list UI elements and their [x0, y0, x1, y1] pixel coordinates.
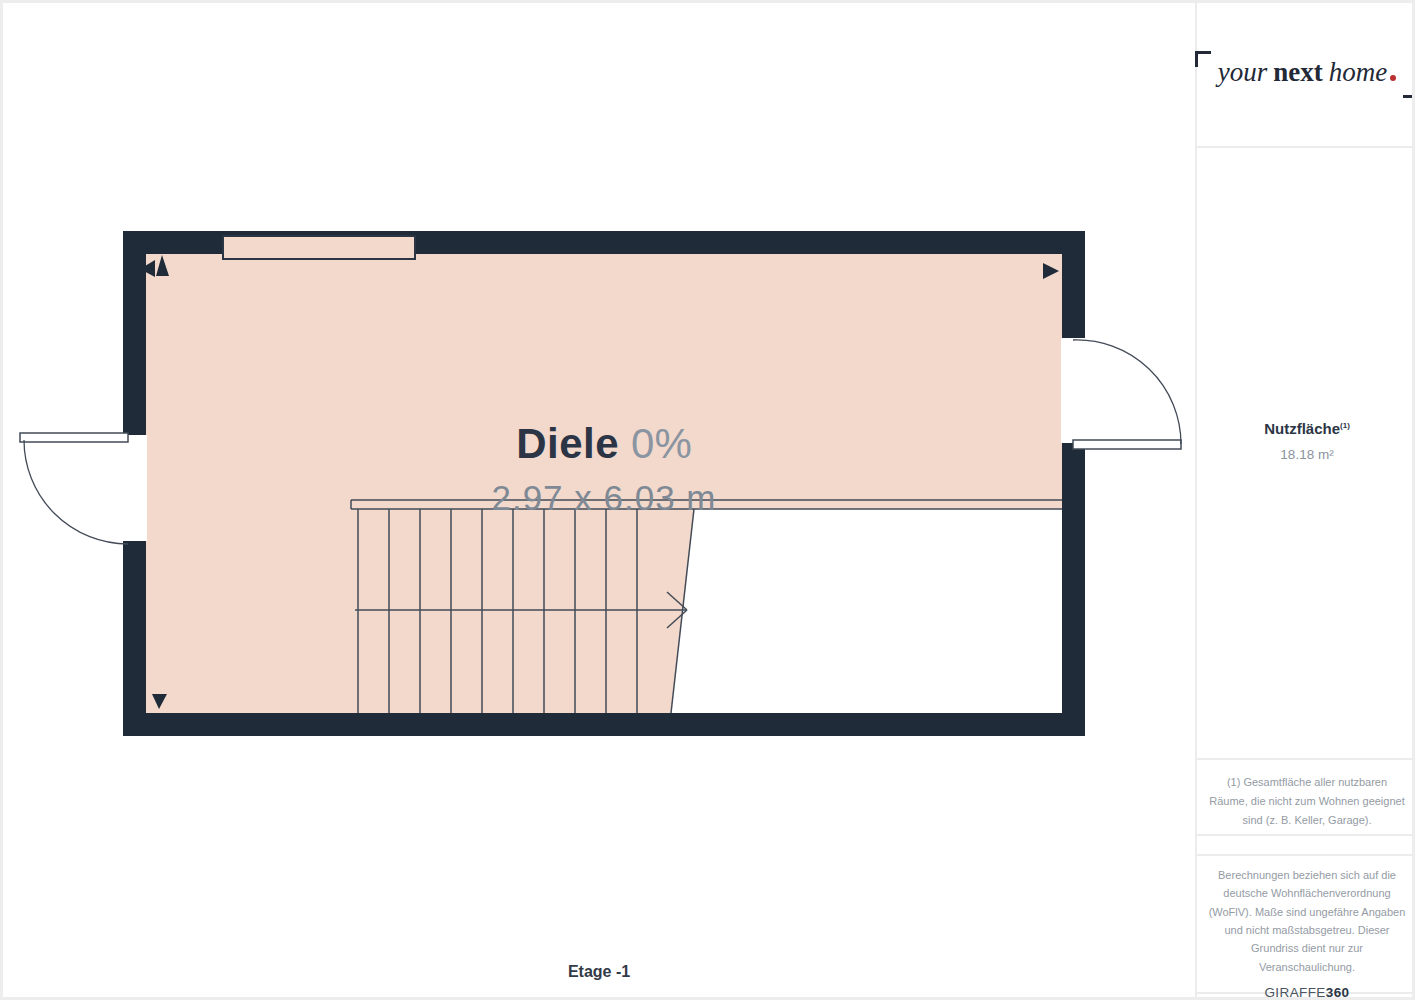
door-right: [1073, 340, 1181, 449]
logo-corner-top-left-icon: [1195, 51, 1211, 67]
floor-level-label: Etage -1: [3, 963, 1195, 981]
door-arc-left: [24, 440, 128, 544]
floorplan-canvas: Diele0% 2.97 x 6.03 m Etage -1: [3, 3, 1195, 1000]
logo-word-next: next: [1273, 57, 1323, 87]
disclaimer-box: Berechnungen beziehen sich auf die deuts…: [1197, 854, 1415, 994]
logo-dot-icon: [1390, 75, 1396, 81]
logo-corner-bottom-right-icon: [1403, 82, 1415, 98]
area-value: 18.18 m²: [1197, 447, 1415, 462]
wall-niche: [223, 236, 415, 259]
sidebar: yournexthome Nutzfläche(1) 18.18 m² (1) …: [1195, 3, 1415, 997]
door-arc-right: [1073, 340, 1181, 444]
area-title-superscript: (1): [1340, 421, 1350, 430]
room-dimensions: 2.97 x 6.03 m: [146, 480, 1062, 515]
stair-void: [671, 509, 1062, 713]
footnote-box: (1) Gesamtfläche aller nutzbaren Räume, …: [1197, 760, 1415, 836]
disclaimer-text: Berechnungen beziehen sich auf die deuts…: [1206, 866, 1408, 976]
logo-word-home: home: [1329, 57, 1387, 87]
area-block: Nutzfläche(1) 18.18 m²: [1197, 148, 1415, 462]
brand-number: 360: [1326, 985, 1350, 1000]
door-leaf-left: [20, 433, 128, 442]
door-left: [20, 433, 128, 544]
logo-word-your: your: [1218, 57, 1268, 87]
giraffe360-brand: GIRAFFE360: [1206, 982, 1408, 1000]
brand-name: GIRAFFE: [1264, 985, 1325, 1000]
room-label: Diele0%: [146, 423, 1062, 465]
door-opening-right: [1061, 338, 1087, 443]
logo-box: yournexthome: [1197, 3, 1415, 148]
area-title-text: Nutzfläche: [1264, 420, 1340, 437]
brand-logo: yournexthome: [1195, 51, 1415, 98]
logo-text: yournexthome: [1218, 51, 1396, 98]
room-percent: 0%: [631, 420, 692, 467]
area-info-box: Nutzfläche(1) 18.18 m²: [1197, 148, 1415, 760]
door-leaf-right: [1073, 440, 1181, 449]
floorplan-page: Diele0% 2.97 x 6.03 m Etage -1 yournexth…: [0, 0, 1415, 1000]
room-name: Diele: [516, 420, 619, 467]
door-opening-left: [121, 435, 147, 541]
area-title: Nutzfläche(1): [1197, 420, 1415, 437]
